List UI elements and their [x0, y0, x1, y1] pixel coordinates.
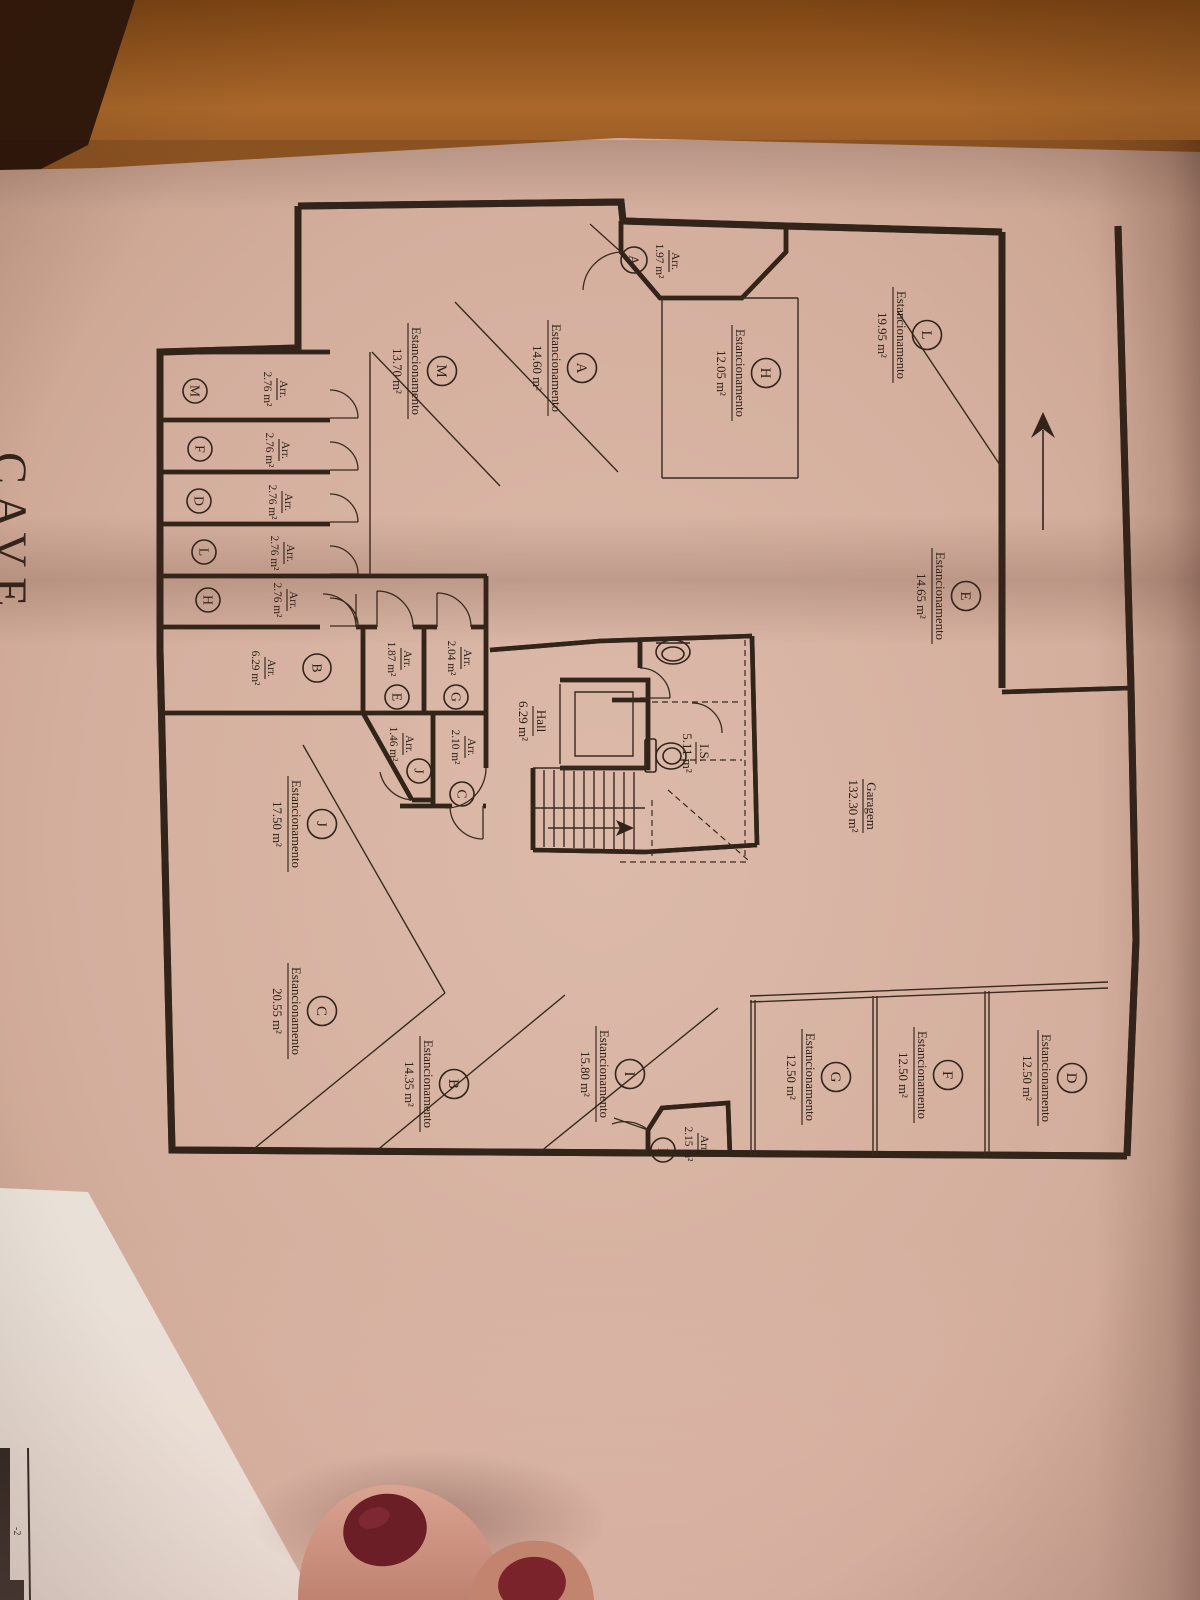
- floor-plan-photo: -2: [0, 0, 1200, 1600]
- hand: [250, 1450, 610, 1600]
- photo-lighting: [0, 0, 1200, 1600]
